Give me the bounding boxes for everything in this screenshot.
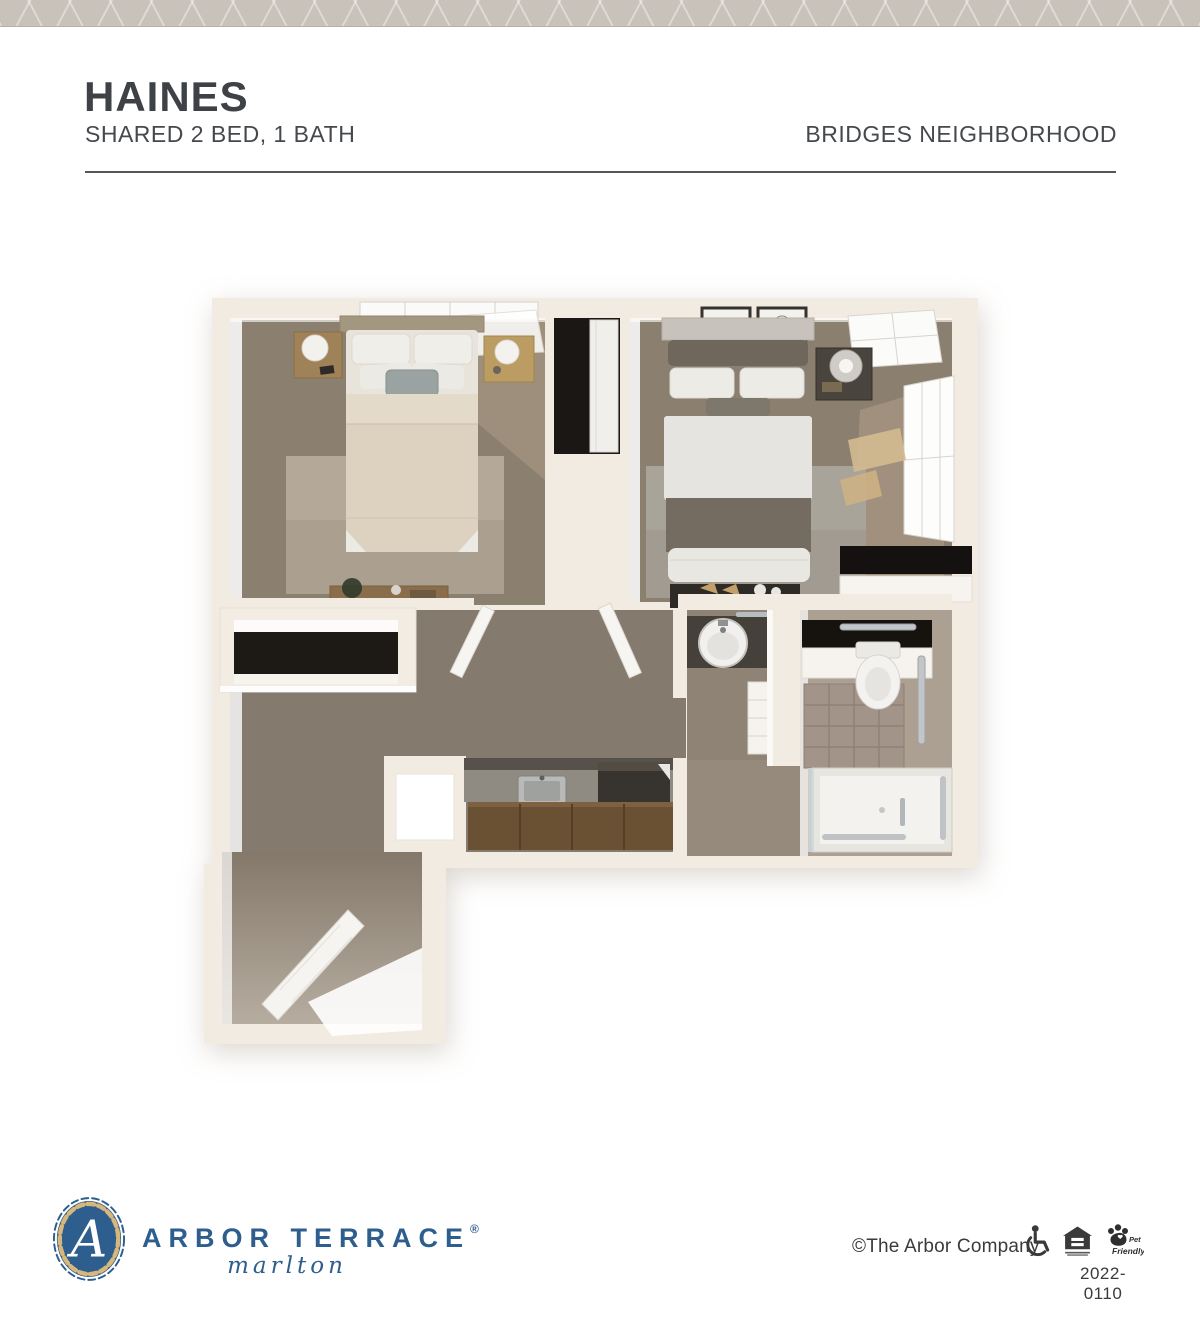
walk-in-shower xyxy=(808,768,952,852)
bedroom-1 xyxy=(230,302,545,610)
bathroom xyxy=(687,610,952,856)
brand-name: ARBOR TERRACE® xyxy=(142,1222,472,1254)
pet-label: Pet xyxy=(1129,1235,1141,1244)
header-divider xyxy=(85,171,1116,173)
bathroom-wall xyxy=(673,610,689,698)
arbor-terrace-logo-badge: A xyxy=(52,1194,126,1284)
friendly-label: Friendly xyxy=(1112,1246,1144,1256)
page-title: HAINES xyxy=(84,76,249,118)
bathroom-divider-face xyxy=(767,610,773,766)
bedroom-2 xyxy=(630,308,972,608)
brand-location: marlton xyxy=(142,1253,432,1279)
living-closet xyxy=(220,608,416,692)
bedroom-1-nightstand-left xyxy=(294,332,342,378)
kitchen-sink xyxy=(518,776,566,807)
bedroom-2-bed xyxy=(662,318,814,582)
bedroom-2-closet xyxy=(840,546,972,602)
registered-mark: ® xyxy=(470,1222,479,1236)
kitchen-side-wall xyxy=(673,758,689,858)
entry xyxy=(222,852,422,1036)
logo-monogram: A xyxy=(67,1210,108,1269)
bedroom-1-bed xyxy=(340,316,484,552)
neighborhood-label: BRIDGES NEIGHBORHOOD xyxy=(805,122,1117,147)
decorative-pattern-band xyxy=(0,0,1200,27)
grab-bar xyxy=(918,656,925,744)
footer-icons: Pet Friendly xyxy=(1024,1222,1144,1264)
floor-plan-image xyxy=(200,290,990,1060)
closet-between-bedrooms xyxy=(554,318,620,454)
bedroom-1-nightstand-right xyxy=(484,336,534,382)
unit-type-subtitle: SHARED 2 BED, 1 BATH xyxy=(85,122,355,147)
toilet xyxy=(856,642,900,709)
wheelchair-accessible-icon xyxy=(1024,1224,1051,1263)
bedroom-2-nightstand xyxy=(816,348,872,400)
document-number: 2022-0110 xyxy=(1063,1264,1143,1304)
pet-friendly-icon: Pet Friendly xyxy=(1104,1224,1144,1263)
bedroom-2-side-window xyxy=(904,376,954,542)
bathroom-shelves xyxy=(748,682,768,754)
copyright-text: ©The Arbor Company xyxy=(852,1236,1040,1258)
equal-housing-opportunity-icon xyxy=(1062,1224,1093,1263)
brand-text: ARBOR TERRACE xyxy=(142,1223,470,1253)
